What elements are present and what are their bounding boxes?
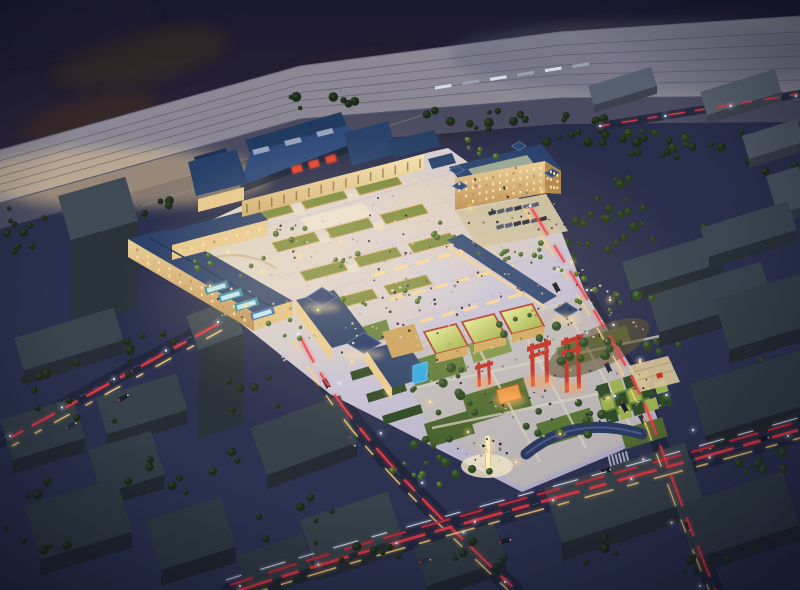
aerial-night-rendering [0,0,800,590]
light-bloom-and-vignette [0,0,800,590]
rendering-canvas [0,0,800,590]
vignette [0,0,800,590]
